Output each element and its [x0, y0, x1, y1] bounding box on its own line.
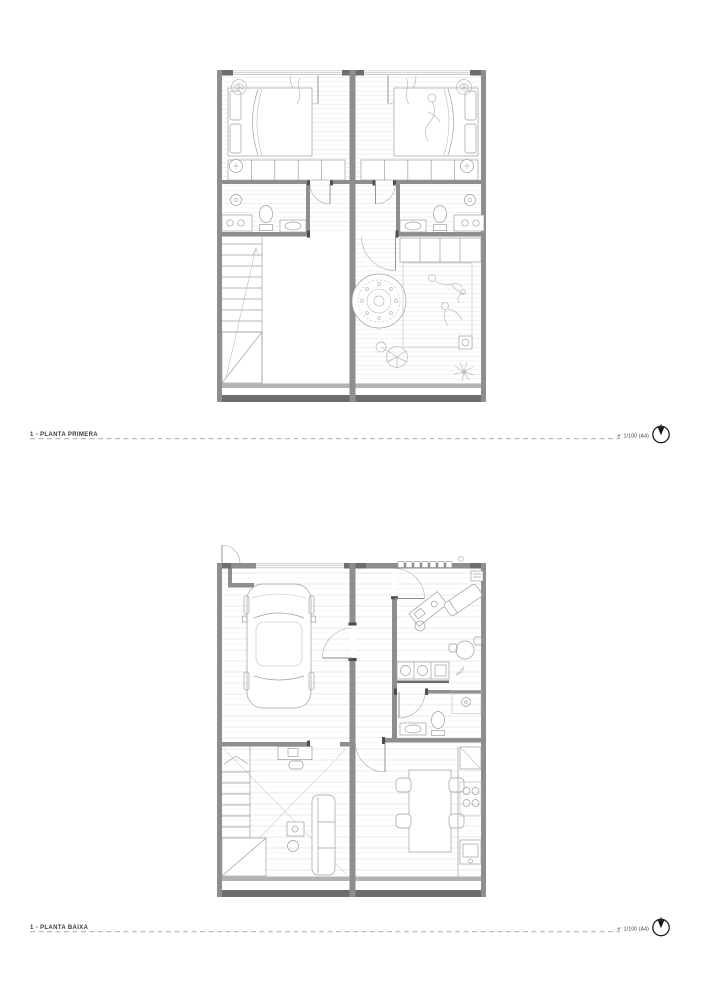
sofa: [312, 795, 335, 875]
speaker: [459, 336, 472, 349]
ceiling-light-icon: [231, 195, 242, 206]
ceiling-light-icon: [465, 195, 476, 206]
stool-icon: [461, 160, 474, 173]
shelf-modules: [398, 562, 452, 568]
plan-sheet: 1 - PLANTA PRIMERA e: 1/100 (A4): [0, 0, 706, 1000]
stairwell: [222, 237, 262, 384]
sheet-scale-note: e: 1/100 (A4): [617, 434, 649, 440]
area-rug: [352, 274, 406, 328]
drawing-canvas: 1 - PLANTA PRIMERA e: 1/100 (A4): [0, 0, 706, 1000]
ground-floor-plan: [217, 545, 486, 897]
vent-icon: [459, 557, 464, 562]
sheet-label-first-floor: 1 - PLANTA PRIMERA e: 1/100 (A4): [30, 424, 669, 442]
toilet: [434, 206, 447, 231]
sheet-title: 1 - PLANTA BAIXA: [30, 925, 89, 931]
car: [243, 584, 316, 708]
toilet: [432, 712, 445, 736]
north-arrow-icon: [653, 424, 669, 442]
sink-vanity: [400, 723, 426, 735]
sink-vanity: [400, 220, 426, 232]
first-floor-plan: [217, 70, 486, 402]
sheet-label-ground-floor: 1 - PLANTA BAIXA e: 1/100 (A4): [30, 917, 669, 936]
stairs: [222, 244, 262, 332]
north-arrow-icon: [653, 917, 669, 936]
wardrobe: [400, 238, 481, 262]
sheet-scale-note: e: 1/100 (A4): [617, 927, 649, 933]
double-basin: [454, 215, 484, 231]
wardrobe: [228, 160, 345, 180]
stool-icon: [230, 160, 243, 173]
meter-box: [471, 571, 483, 581]
kitchen-sink: [460, 840, 481, 864]
sheet-title: 1 - PLANTA PRIMERA: [30, 432, 98, 438]
double-basin: [222, 215, 252, 231]
garage: [243, 584, 316, 708]
wardrobe: [361, 160, 478, 180]
toilet: [260, 206, 273, 231]
sink-vanity: [280, 220, 306, 232]
